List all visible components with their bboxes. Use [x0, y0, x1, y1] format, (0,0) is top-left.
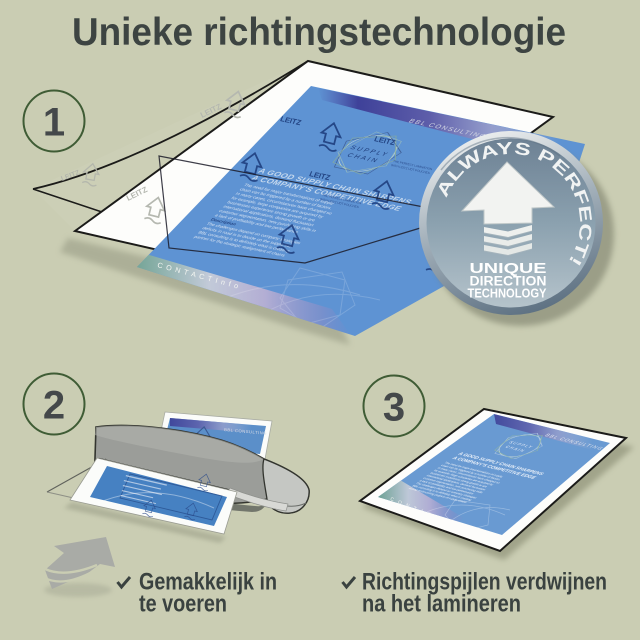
svg-text:2: 2 — [43, 384, 65, 428]
svg-text:TECHNOLOGY: TECHNOLOGY — [468, 287, 548, 301]
svg-text:3: 3 — [383, 386, 405, 430]
svg-text:Unieke richtingstechnologie: Unieke richtingstechnologie — [72, 11, 566, 54]
svg-text:te voeren: te voeren — [139, 591, 227, 618]
svg-text:na het lamineren: na het lamineren — [362, 591, 521, 618]
svg-text:1: 1 — [43, 101, 65, 145]
